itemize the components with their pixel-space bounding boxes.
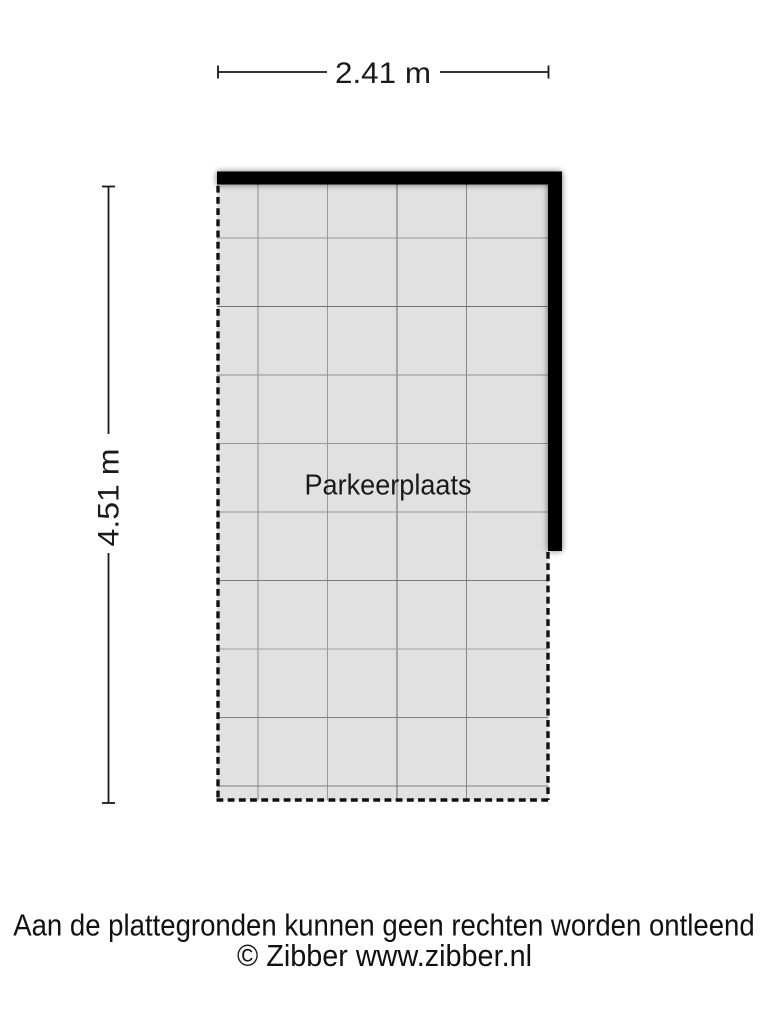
svg-text:Parkeerplaats: Parkeerplaats	[305, 470, 472, 502]
svg-text:4.51 m: 4.51 m	[93, 449, 126, 547]
svg-text:2.41 m: 2.41 m	[335, 57, 431, 90]
svg-text:© Zibber www.zibber.nl: © Zibber www.zibber.nl	[237, 938, 532, 973]
